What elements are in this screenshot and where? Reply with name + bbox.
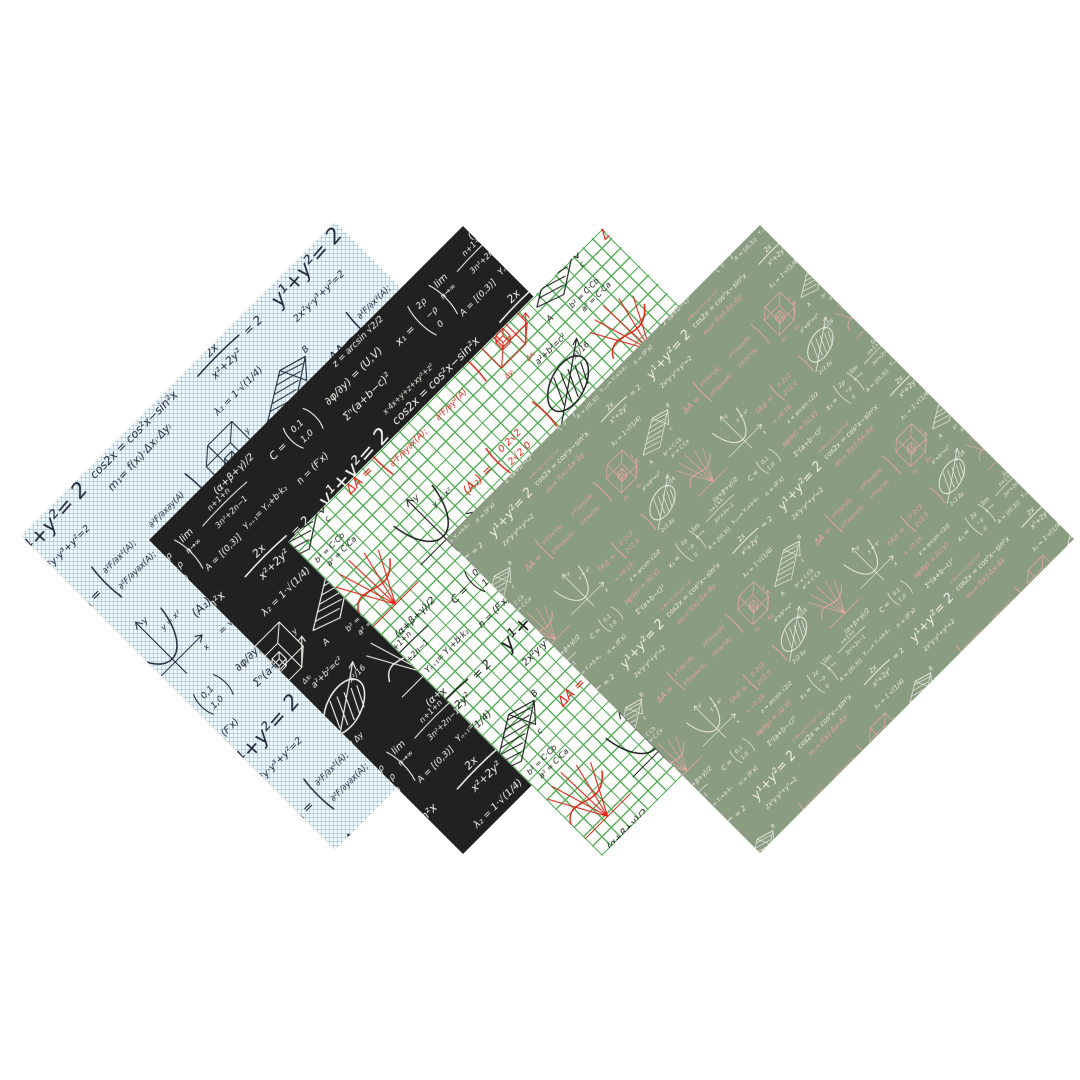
pattern-mockup-canvas: y¹+y²= 2 2x²y·y³+y²=2 x·4x+y+z+xy³+z² co…	[0, 0, 1080, 1080]
